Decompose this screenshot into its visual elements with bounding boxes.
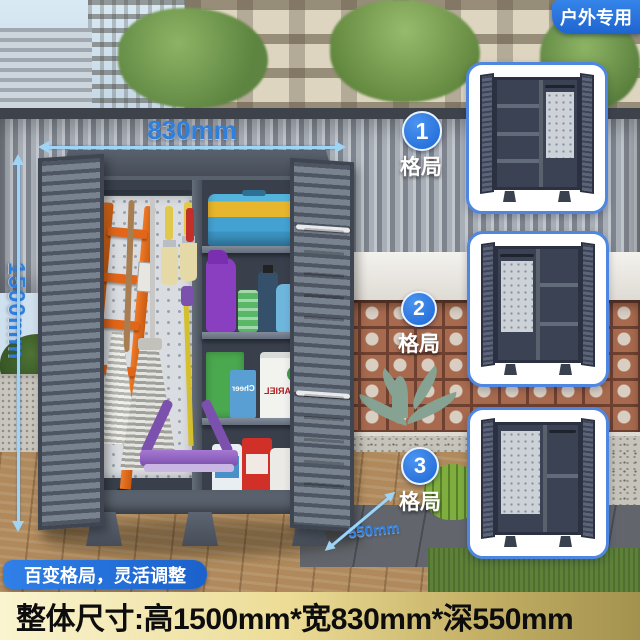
height-dimension-arrow	[17, 164, 20, 522]
mini-door-left	[481, 418, 495, 539]
agave-leaf	[403, 392, 461, 425]
mini-cabinet-layout-2	[482, 243, 594, 375]
spray-bottle	[206, 258, 236, 332]
mini-shelf-cell	[540, 249, 578, 287]
mini-hanging-rod	[500, 254, 534, 257]
outdoor-use-badge: 户外专用	[552, 0, 640, 34]
mini-pegboard	[501, 431, 540, 514]
mini-peg-column	[498, 425, 543, 532]
detergent-box-blue: Cheer	[230, 370, 256, 418]
mini-cabinet-body	[495, 422, 581, 535]
mini-shelf-column	[547, 425, 578, 532]
mini-peg-column	[543, 80, 577, 187]
mini-foot	[503, 191, 516, 202]
detergent-box-label: Cheer	[232, 384, 255, 393]
towel-bar	[296, 390, 350, 399]
mini-door-left	[481, 242, 495, 367]
layout-option-3-number: 3	[401, 447, 439, 485]
mini-shelf-board	[547, 474, 578, 478]
mini-shelf-cell	[497, 108, 539, 136]
mini-door-right	[581, 242, 595, 367]
towel	[304, 228, 344, 329]
toolbox	[208, 194, 300, 246]
width-dimension-label: 830mm	[46, 115, 338, 146]
mini-foot	[559, 536, 572, 547]
layout-option-2-number: 2	[401, 291, 437, 327]
mini-pegboard	[546, 92, 574, 158]
product-image: Cheer ARIEL	[0, 0, 640, 640]
building-far	[0, 28, 92, 112]
mini-foot	[558, 191, 571, 202]
mini-shelf-cell	[540, 326, 578, 360]
layout-option-3-label: 格局	[393, 486, 447, 516]
hand-tool	[186, 208, 194, 242]
mini-shelf-cell	[497, 136, 539, 164]
brush-bristles	[180, 243, 197, 281]
mini-door-left	[480, 73, 494, 194]
mini-foot	[559, 364, 572, 375]
bottle-dark	[258, 272, 278, 332]
mop-binding	[138, 338, 162, 350]
louvered-door-left	[38, 154, 104, 531]
paint-brush	[160, 206, 178, 285]
mini-hanging-rod	[545, 85, 575, 88]
detergent-tub-label: ARIEL	[264, 386, 291, 396]
mini-foot	[504, 364, 517, 375]
overall-size-text: 整体尺寸:高1500mm*宽830mm*深550mm	[0, 594, 573, 638]
mini-shelf-column	[497, 80, 539, 187]
brush-ferrule	[163, 240, 176, 247]
tree	[330, 0, 480, 102]
brush-bristles	[161, 247, 178, 285]
layout-thumbnail-3	[467, 407, 609, 559]
mop-grip	[181, 286, 194, 306]
mini-cabinet-layout-1	[481, 74, 593, 202]
flexible-layout-banner: 百变格局，灵活调整	[3, 560, 207, 589]
size-footer: 整体尺寸:高1500mm*宽830mm*深550mm	[0, 592, 640, 640]
mini-cabinet-body	[494, 77, 580, 190]
tree	[118, 8, 268, 108]
layout-thumbnail-2	[467, 231, 609, 387]
mini-pegboard	[501, 261, 533, 332]
mini-shelf-cell	[540, 287, 578, 325]
towel	[304, 394, 344, 495]
sponge-mop-pad	[144, 464, 234, 472]
paint-can-red	[242, 438, 272, 494]
mini-peg-column	[498, 249, 536, 360]
mini-shelf-column	[540, 249, 578, 360]
layout-thumbnail-1	[466, 62, 608, 214]
mini-shelf-cell	[497, 80, 539, 108]
mini-cabinet-layout-3	[482, 419, 594, 547]
ladder-rung	[99, 318, 140, 330]
sponges	[238, 290, 258, 332]
mini-shelf-cell	[497, 163, 539, 187]
layout-option-1-number: 1	[402, 111, 442, 151]
brush-handle	[165, 206, 173, 240]
agave-leaf	[392, 376, 408, 418]
width-dimension-arrow	[48, 146, 336, 149]
louvered-door-right	[290, 158, 354, 532]
layout-option-1-label: 格局	[394, 151, 448, 181]
mini-foot	[504, 536, 517, 547]
mini-hanging-rod	[549, 430, 576, 433]
layout-option-2-label: 格局	[392, 328, 446, 358]
mini-door-right	[580, 73, 594, 194]
mini-cabinet-body	[495, 246, 581, 363]
mini-door-right	[581, 418, 595, 539]
towel-bar	[296, 224, 350, 233]
